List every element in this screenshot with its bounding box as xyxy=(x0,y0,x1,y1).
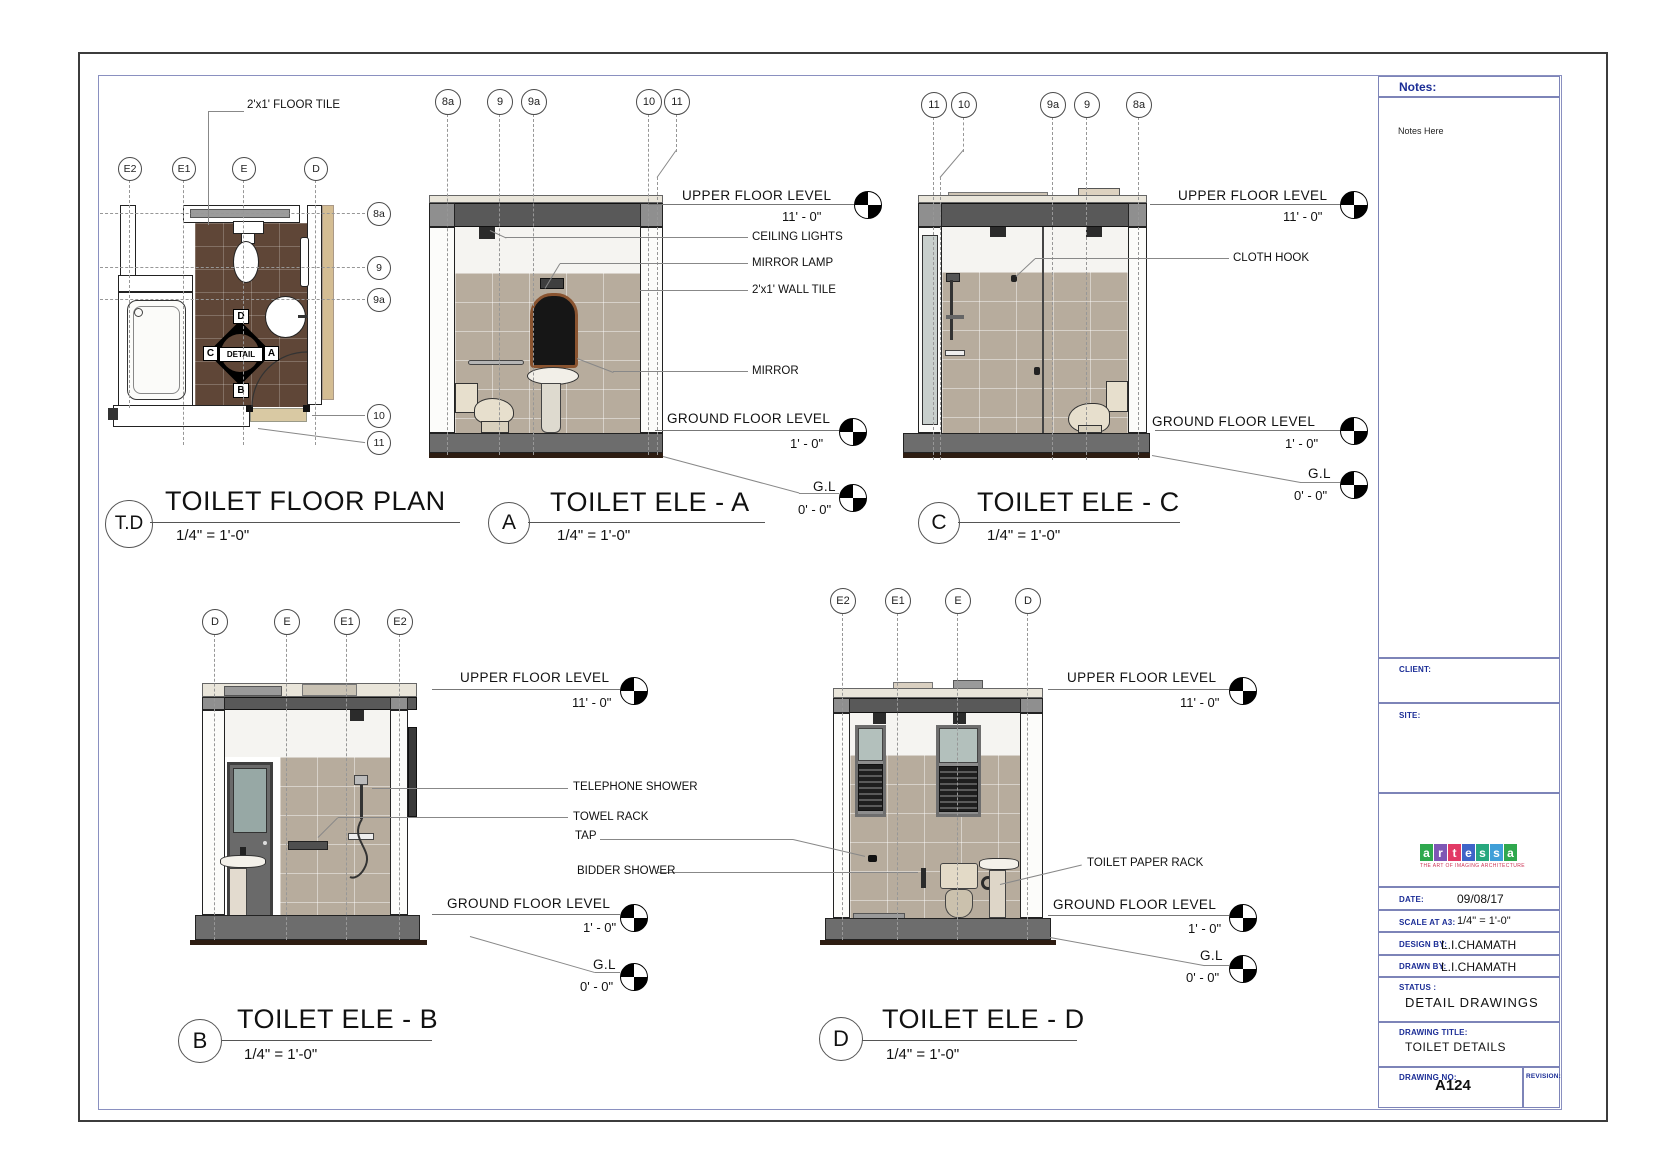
wall-cap xyxy=(429,203,455,227)
elevation-a-drawing xyxy=(429,195,663,458)
grid-bubble-label: E xyxy=(954,595,961,607)
grid-bubble: 11 xyxy=(367,431,391,455)
gridline xyxy=(940,177,941,460)
grid-bubble: 11 xyxy=(921,92,947,118)
logo-section: a r t e s s a THE ART OF IMAGING ARCHITE… xyxy=(1378,793,1560,887)
level-marker-icon xyxy=(1340,191,1368,219)
notes-panel-header: Notes: xyxy=(1378,76,1560,97)
gridline xyxy=(286,634,287,940)
grid-bubble: 9a xyxy=(521,89,547,115)
grid-bubble: 9 xyxy=(367,256,391,280)
plan-ref: T.D xyxy=(115,513,144,535)
status-value: DETAIL DRAWINGS xyxy=(1405,995,1539,1010)
ele-b-caption-circle: B xyxy=(178,1019,222,1063)
plan-caption-line xyxy=(150,522,460,523)
item-on-slab xyxy=(302,684,357,696)
logo-letter-tile: r xyxy=(1434,844,1447,861)
ele-a-title: TOILET ELE - A xyxy=(550,487,750,518)
notes-header: Notes: xyxy=(1399,80,1436,94)
ele-a-ref: A xyxy=(502,511,516,535)
ground-strip xyxy=(190,940,427,945)
grid-bubble-label: 9 xyxy=(497,96,503,108)
drawn-by-label: DRAWN BY: xyxy=(1399,962,1446,971)
window-louvers xyxy=(939,766,978,812)
gridline xyxy=(533,114,534,455)
bidder-shower-label: BIDDER SHOWER xyxy=(577,865,675,877)
gl-value: 0' - 0" xyxy=(798,502,831,517)
grid-bubble-label: E1 xyxy=(178,163,191,175)
grid-bubble: E1 xyxy=(885,588,911,614)
revision-label: REVISION: xyxy=(1526,1073,1561,1080)
ele-d-caption-circle: D xyxy=(819,1017,863,1061)
ground-strip xyxy=(820,940,1056,945)
gridline xyxy=(499,114,500,455)
sink-faucet-icon xyxy=(298,315,308,318)
upper-floor-level-value: 11' - 0" xyxy=(1180,695,1219,710)
leader-line xyxy=(372,788,568,789)
ele-d-ref: D xyxy=(833,1026,849,1052)
wall-tile-label: 2'x1' WALL TILE xyxy=(752,284,836,296)
revision-section: REVISION: xyxy=(1523,1067,1560,1108)
bidet-sprayer-icon xyxy=(921,868,926,888)
tile-strip xyxy=(322,205,334,400)
site-section: SITE: xyxy=(1378,703,1560,793)
logo-letter-tile: e xyxy=(1462,844,1475,861)
floor-slab-top xyxy=(429,195,663,203)
drawn-by-value: L.I.CHAMATH xyxy=(1441,960,1516,974)
basin-pedestal xyxy=(989,870,1006,918)
ele-d-title: TOILET ELE - D xyxy=(882,1004,1085,1035)
ground-floor-level-value: 1' - 0" xyxy=(1188,921,1221,936)
side-window xyxy=(408,727,417,817)
hook-icon xyxy=(1034,367,1040,375)
grid-bubble-label: E2 xyxy=(124,163,137,175)
ele-c-ref: C xyxy=(931,511,946,535)
company-logo: a r t e s s a xyxy=(1420,844,1518,861)
toilet-plan-bowl xyxy=(233,241,259,283)
gl-value: 0' - 0" xyxy=(580,979,613,994)
louver-window-main xyxy=(936,725,981,817)
drawing-title-section: DRAWING TITLE: TOILET DETAILS xyxy=(1378,1022,1560,1067)
wall-cap xyxy=(918,203,942,227)
grid-bubble: D xyxy=(202,609,228,635)
detail-marker-label-box: DETAIL xyxy=(219,347,263,362)
grid-bubble-label: 11 xyxy=(671,96,682,108)
gridline xyxy=(957,613,958,940)
gl-value: 0' - 0" xyxy=(1294,488,1327,503)
ele-b-scale: 1/4" = 1'-0" xyxy=(244,1046,317,1063)
louver-window-small xyxy=(855,725,886,817)
ceiling-lights-label: CEILING LIGHTS xyxy=(752,231,843,243)
drawing-sheet: E2 E1 E D 8a 9 9a 10 11 2'x1' FLOOR TILE xyxy=(0,0,1656,1170)
toilet-paper-rack-label: TOILET PAPER RACK xyxy=(1087,857,1203,869)
grid-bubble: 11 xyxy=(664,89,690,115)
plan-title: TOILET FLOOR PLAN xyxy=(165,486,446,517)
grid-bubble-label: 9a xyxy=(1047,99,1059,111)
level-line xyxy=(655,430,840,431)
gridline xyxy=(214,634,215,940)
date-label: DATE: xyxy=(1399,895,1424,904)
wall-cap xyxy=(1020,698,1043,713)
detail-ref-top: D xyxy=(233,309,249,324)
floor-slab xyxy=(195,915,420,940)
shower-hose xyxy=(340,813,390,885)
grid-bubble: E xyxy=(274,609,300,635)
level-line xyxy=(432,689,620,690)
upper-floor-level-label: UPPER FLOOR LEVEL xyxy=(460,670,609,685)
ele-c-title: TOILET ELE - C xyxy=(977,487,1180,518)
level-marker-icon xyxy=(1340,471,1368,499)
grid-bubble: D xyxy=(304,157,328,181)
grid-bubble-label: 9a xyxy=(373,294,385,306)
scale-row: SCALE AT A3: 1/4" = 1'-0" xyxy=(1378,910,1560,932)
logo-letter-tile: s xyxy=(1490,844,1503,861)
level-line xyxy=(1155,430,1340,431)
tap-label: TAP xyxy=(575,830,597,842)
grid-bubble-label: E2 xyxy=(836,595,849,607)
leader-line xyxy=(338,817,568,818)
leader-line xyxy=(600,839,793,840)
cloth-hook-label: CLOTH HOOK xyxy=(1233,252,1309,264)
grid-bubble: 10 xyxy=(367,404,391,428)
status-label: STATUS : xyxy=(1399,983,1436,992)
level-marker-icon xyxy=(620,677,648,705)
gridline xyxy=(1052,117,1053,460)
gridline xyxy=(100,267,365,268)
logo-tagline: THE ART OF IMAGING ARCHITECTURE xyxy=(1420,863,1525,869)
drawing-no-value: A124 xyxy=(1435,1077,1471,1094)
wall-cut-mark xyxy=(108,408,118,420)
basin-bowl xyxy=(979,858,1019,870)
ground-floor-level-value: 1' - 0" xyxy=(1285,436,1318,451)
leader-line xyxy=(209,111,244,112)
leader-line xyxy=(1300,482,1340,483)
grid-bubble-label: E1 xyxy=(340,616,353,628)
floor-slab xyxy=(429,433,663,453)
level-line xyxy=(1048,915,1229,916)
grid-bubble: 10 xyxy=(636,89,662,115)
level-line xyxy=(432,914,620,915)
ceiling-light-icon xyxy=(990,227,1006,237)
gridline xyxy=(346,634,347,940)
leader-line xyxy=(640,290,748,291)
level-line xyxy=(1048,689,1229,690)
wall-cap xyxy=(640,203,663,227)
level-marker-icon xyxy=(1229,955,1257,983)
grid-bubble-label: 10 xyxy=(643,96,655,108)
grid-bubble-label: 8a xyxy=(373,208,385,220)
shower-crossbar xyxy=(946,315,964,319)
ground-floor-level-label: GROUND FLOOR LEVEL xyxy=(1053,897,1216,912)
grid-bubble: E2 xyxy=(118,157,142,181)
shower-glass-door xyxy=(922,235,938,425)
telephone-shower-head-icon xyxy=(354,775,368,785)
leader-line xyxy=(595,972,620,973)
grid-bubble: E1 xyxy=(172,157,196,181)
grid-bubble-label: 11 xyxy=(928,99,939,111)
gridline xyxy=(1086,117,1087,460)
design-by-row: DESIGN BY: L.I.CHAMATH xyxy=(1378,932,1560,955)
tap-bar xyxy=(945,350,965,356)
ground-floor-level-label: GROUND FLOOR LEVEL xyxy=(447,896,610,911)
status-section: STATUS : DETAIL DRAWINGS xyxy=(1378,977,1560,1022)
client-section: CLIENT: xyxy=(1378,658,1560,703)
ele-b-ref: B xyxy=(193,1028,208,1054)
ceiling-beam xyxy=(202,697,417,710)
grid-bubble: 8a xyxy=(367,202,391,226)
door-handle-icon xyxy=(263,841,267,845)
gridline xyxy=(676,114,677,152)
mirror-shape xyxy=(530,293,578,368)
ceiling-light-icon xyxy=(953,713,966,724)
detail-marker-label: DETAIL xyxy=(227,350,255,359)
grid-bubble: 9a xyxy=(1040,92,1066,118)
gl-value: 0' - 0" xyxy=(1186,970,1219,985)
level-marker-icon xyxy=(1229,904,1257,932)
ground-floor-level-value: 1' - 0" xyxy=(583,920,616,935)
leader-line xyxy=(658,872,918,873)
floor-slab-top xyxy=(833,688,1043,698)
grid-bubble-label: D xyxy=(211,616,219,628)
gridline xyxy=(933,117,934,460)
grid-bubble-label: 11 xyxy=(374,437,385,449)
grid-bubble-label: 9a xyxy=(528,96,540,108)
notes-placeholder: Notes Here xyxy=(1398,126,1444,136)
window-louvers xyxy=(858,764,883,811)
door-glass xyxy=(233,768,267,833)
scale-at-a3-label: SCALE AT A3: xyxy=(1399,918,1455,927)
ground-floor-level-label: GROUND FLOOR LEVEL xyxy=(1152,414,1315,429)
upper-floor-level-value: 11' - 0" xyxy=(1283,209,1322,224)
ceiling-light-icon xyxy=(350,710,364,721)
floor-tile-note: 2'x1' FLOOR TILE xyxy=(247,99,340,111)
date-row: DATE: 09/08/17 xyxy=(1378,887,1560,910)
gl-label: G.L xyxy=(1308,466,1331,481)
leader-line xyxy=(613,371,748,372)
detail-ref-left: C xyxy=(203,346,218,361)
ele-a-caption-line xyxy=(528,522,765,523)
grid-bubble: E2 xyxy=(830,588,856,614)
grid-bubble: E xyxy=(945,588,971,614)
grid-bubble: 9a xyxy=(367,288,391,312)
ground-floor-level-label: GROUND FLOOR LEVEL xyxy=(667,411,830,426)
window-glass xyxy=(939,728,978,763)
detail-ref-bottom: B xyxy=(233,383,249,398)
tap-icon xyxy=(868,855,877,862)
ele-c-caption-line xyxy=(958,522,1180,523)
detail-ref-right: A xyxy=(264,346,279,361)
ceiling-beam xyxy=(429,203,663,227)
grid-bubble-label: D xyxy=(1024,595,1032,607)
gridline xyxy=(447,114,448,455)
gridline xyxy=(842,613,843,940)
upper-floor-level-label: UPPER FLOOR LEVEL xyxy=(1067,670,1216,685)
ceiling-light-icon xyxy=(873,713,886,724)
grid-bubble-label: 10 xyxy=(958,99,970,111)
floor-plan-drawing: DETAIL D A B C xyxy=(100,178,350,450)
floor-slab-top xyxy=(918,195,1147,203)
drawn-by-row: DRAWN BY: L.I.CHAMATH xyxy=(1378,955,1560,977)
gridline xyxy=(648,114,649,455)
plan-wall-niche xyxy=(300,237,309,287)
plan-wall-bottom xyxy=(113,405,250,427)
level-marker-icon xyxy=(620,963,648,991)
basin-faucet-icon xyxy=(240,847,246,855)
toilet-tank xyxy=(1106,381,1128,412)
grid-bubble-label: 10 xyxy=(373,410,385,422)
tub-faucet-icon xyxy=(134,308,143,317)
gridline xyxy=(100,299,365,300)
elevation-b-drawing xyxy=(202,683,417,945)
level-line xyxy=(648,204,854,205)
date-value: 09/08/17 xyxy=(1457,892,1504,906)
gridline xyxy=(399,634,400,940)
ele-d-caption-line xyxy=(862,1040,1077,1041)
grid-bubble-label: 9 xyxy=(376,262,382,274)
gl-label: G.L xyxy=(593,957,616,972)
grid-bubble: E2 xyxy=(387,609,413,635)
ceiling-light-icon xyxy=(479,227,495,239)
wall-left xyxy=(429,227,455,433)
logo-letter-tile: a xyxy=(1420,844,1433,861)
gridline xyxy=(243,180,244,445)
bathtub-inner xyxy=(133,306,180,394)
grid-bubble: 9 xyxy=(1074,92,1100,118)
gridline xyxy=(315,180,316,445)
leader-line xyxy=(560,263,748,264)
upper-floor-level-label: UPPER FLOOR LEVEL xyxy=(682,188,831,203)
wall-right xyxy=(640,227,663,433)
ele-b-caption-line xyxy=(222,1040,432,1041)
gridline xyxy=(1027,613,1028,940)
gl-label: G.L xyxy=(1200,948,1223,963)
item-on-slab xyxy=(224,686,282,696)
basin-bowl xyxy=(220,855,266,868)
elevation-c-drawing xyxy=(918,195,1147,460)
client-label: CLIENT: xyxy=(1399,665,1431,674)
gridline xyxy=(183,180,184,445)
notes-panel-body: Notes Here xyxy=(1378,97,1560,658)
mirror-lamp-label: MIRROR LAMP xyxy=(752,257,833,269)
grid-bubble-label: 8a xyxy=(1133,99,1145,111)
site-label: SITE: xyxy=(1399,711,1420,720)
logo-letter-tile: a xyxy=(1504,844,1517,861)
level-marker-icon xyxy=(839,418,867,446)
wall-right xyxy=(1020,713,1043,918)
grid-bubble: 8a xyxy=(435,89,461,115)
grab-bar xyxy=(468,360,524,365)
drawing-title-label: DRAWING TITLE: xyxy=(1399,1028,1468,1037)
upper-floor-level-value: 11' - 0" xyxy=(572,695,611,710)
shower-rod xyxy=(950,280,953,340)
ele-d-scale: 1/4" = 1'-0" xyxy=(886,1046,959,1063)
leader-line xyxy=(208,111,209,225)
level-marker-icon xyxy=(1229,677,1257,705)
grid-bubble: E xyxy=(232,157,256,181)
grid-bubble: 10 xyxy=(951,92,977,118)
basin-pedestal xyxy=(229,868,247,916)
detail-ref-letter: C xyxy=(207,348,214,359)
level-marker-icon xyxy=(1340,417,1368,445)
gl-label: G.L xyxy=(813,479,836,494)
leader-line xyxy=(1204,965,1229,966)
design-by-label: DESIGN BY: xyxy=(1399,940,1447,949)
towel-shelf xyxy=(288,841,328,850)
gridline xyxy=(897,613,898,940)
ele-b-title: TOILET ELE - B xyxy=(237,1004,438,1035)
ground-floor-level-value: 1' - 0" xyxy=(790,436,823,451)
plan-scale: 1/4" = 1'-0" xyxy=(176,527,249,544)
grid-bubble-label: E xyxy=(283,616,290,628)
ele-c-caption-circle: C xyxy=(918,502,960,544)
gridline xyxy=(657,177,658,455)
towel-rack-label: TOWEL RACK xyxy=(573,811,648,823)
toilet-bowl xyxy=(945,889,973,918)
grid-bubble: D xyxy=(1015,588,1041,614)
grid-bubble-label: E xyxy=(240,163,247,175)
leader-line xyxy=(1035,258,1229,259)
elevation-d-drawing xyxy=(833,688,1043,945)
upper-wall xyxy=(225,710,390,757)
gridline xyxy=(963,117,964,152)
level-marker-icon xyxy=(854,191,882,219)
design-by-value: L.I.CHAMATH xyxy=(1441,938,1516,952)
level-marker-icon xyxy=(839,484,867,512)
logo-letter-tile: t xyxy=(1448,844,1461,861)
shower-head-icon xyxy=(946,273,960,282)
ceiling-beam xyxy=(833,698,1043,713)
plan-caption-circle: T.D xyxy=(105,500,153,548)
ceiling-light-icon xyxy=(1086,227,1102,237)
ele-c-scale: 1/4" = 1'-0" xyxy=(987,527,1060,544)
mirror-label: MIRROR xyxy=(752,365,799,377)
grid-bubble-label: D xyxy=(312,163,320,175)
logo-letter-tile: s xyxy=(1476,844,1489,861)
drawing-no-section: DRAWING NO: A124 xyxy=(1378,1067,1523,1108)
ele-a-scale: 1/4" = 1'-0" xyxy=(557,527,630,544)
toilet-cistern xyxy=(940,863,978,889)
toilet-base xyxy=(481,421,509,433)
toilet-base xyxy=(1078,425,1102,433)
telephone-shower-label: TELEPHONE SHOWER xyxy=(573,781,698,793)
grid-bubble: 8a xyxy=(1126,92,1152,118)
sink-pedestal xyxy=(541,383,561,433)
window-glass xyxy=(858,728,883,761)
upper-floor-level-label: UPPER FLOOR LEVEL xyxy=(1178,188,1327,203)
floor-slab xyxy=(825,918,1051,940)
grid-bubble: 9 xyxy=(487,89,513,115)
grid-bubble: E1 xyxy=(334,609,360,635)
ceiling-beam xyxy=(918,203,1147,227)
upper-floor-level-value: 11' - 0" xyxy=(782,209,821,224)
grid-bubble-label: 8a xyxy=(442,96,454,108)
leader-line xyxy=(312,415,365,416)
grid-bubble-label: E2 xyxy=(393,616,406,628)
ground-strip xyxy=(429,453,663,458)
level-line xyxy=(1150,204,1340,205)
gridline xyxy=(1138,117,1139,460)
gridline xyxy=(100,213,365,214)
gridline xyxy=(129,180,130,408)
grid-bubble-label: 9 xyxy=(1084,99,1090,111)
grid-bubble-label: E1 xyxy=(891,595,904,607)
level-marker-icon xyxy=(620,904,648,932)
ele-a-caption-circle: A xyxy=(488,502,530,544)
drawing-title-value: TOILET DETAILS xyxy=(1405,1040,1506,1054)
detail-ref-letter: A xyxy=(268,348,275,359)
scale-at-a3-value: 1/4" = 1'-0" xyxy=(1457,915,1511,927)
leader-line xyxy=(505,237,748,238)
